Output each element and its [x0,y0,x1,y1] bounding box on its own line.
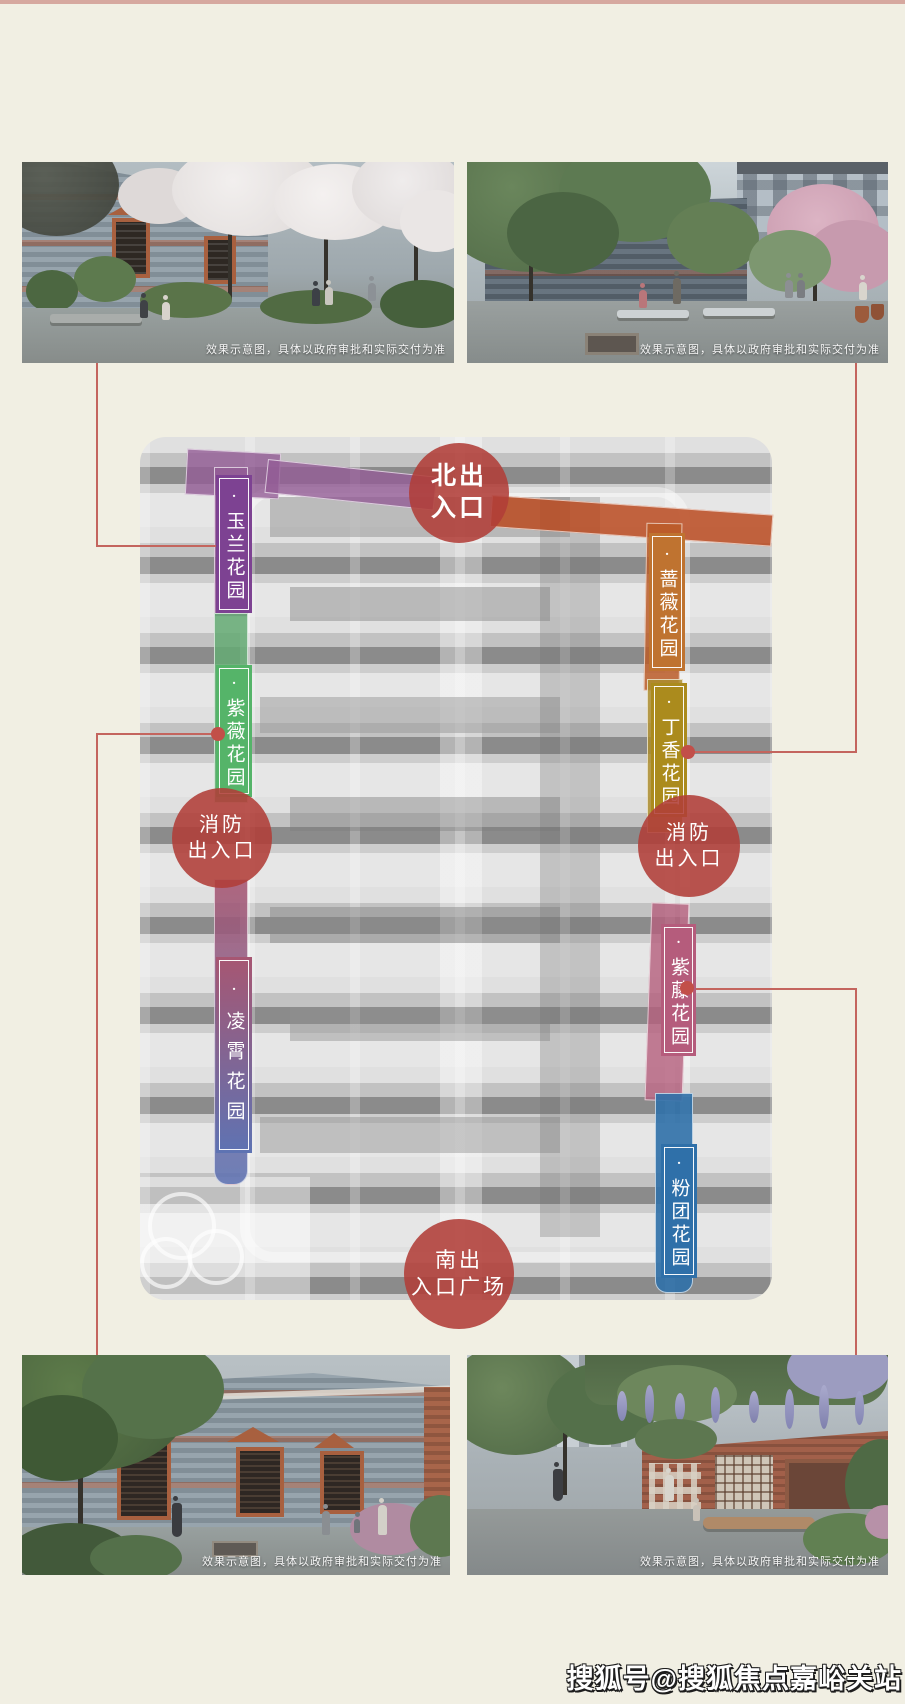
connector-dot [211,727,225,741]
photo-caption: 效果示意图，具体以政府审批和实际交付为准 [640,1553,880,1569]
person-figure [639,290,647,308]
connector-line [687,988,857,990]
road-column [540,497,600,1237]
tree-canopy-blob [667,202,759,274]
bench [703,308,775,316]
connector-line [96,733,98,1355]
shrub-blob [140,282,232,318]
person-figure [797,280,805,298]
person-figure [859,282,867,300]
person-figure [322,1511,330,1535]
building-block [290,1007,550,1041]
path-ring [140,1237,192,1289]
tree-canopy-blob [507,192,619,274]
connector-line [96,363,98,547]
top-border [0,0,905,4]
connector-line [855,363,857,753]
lattice-window [715,1455,773,1511]
connector-line [96,733,220,735]
shuttered-window [236,1447,284,1517]
path-ring [188,1229,244,1285]
connector-line [855,988,857,1355]
wisteria-cluster [711,1387,720,1423]
person-figure [785,280,793,298]
photo-caption: 效果示意图，具体以政府审批和实际交付为准 [202,1553,442,1569]
wisteria-cluster [675,1393,685,1421]
building-block [290,587,550,621]
page: 效果示意图，具体以政府审批和实际交付为准 效果示意图，具体以政府审批和实际交付为… [0,0,905,1704]
vine-blob [26,270,78,312]
person-figure [354,1519,360,1533]
entrance-north: 北出 入口 [409,443,509,543]
photo-bottom-right: 效果示意图，具体以政府审批和实际交付为准 [467,1355,888,1575]
entrance-fire-west: 消防 出入口 [172,788,272,888]
fire-pit [585,333,639,355]
window-pediment [314,1433,354,1448]
garden-label-qiangwei: ·蔷薇花园 [649,533,685,671]
window-pediment [227,1427,279,1442]
shrub-blob [380,280,454,328]
bench [50,314,142,323]
photo-bottom-left: 效果示意图，具体以政府审批和实际交付为准 [22,1355,450,1575]
person-figure [693,1505,700,1521]
photo-caption: 效果示意图，具体以政府审批和实际交付为准 [206,341,446,357]
vine-blob [635,1419,717,1459]
photo-top-right: 效果示意图，具体以政府审批和实际交付为准 [467,162,888,363]
shrub-blob [90,1535,182,1575]
planter-pot [871,304,884,320]
person-figure [673,278,681,304]
person-figure [140,300,148,318]
person-figure [368,283,376,301]
building-block [270,907,560,943]
person-figure [162,302,170,320]
roof-line [737,162,888,174]
wisteria-cluster [785,1389,794,1429]
building-block [290,797,560,831]
person-figure [378,1505,387,1535]
photo-caption: 效果示意图，具体以政府审批和实际交付为准 [640,341,880,357]
person-figure [553,1469,563,1501]
garden-label-yulan: ·玉兰花园 [216,475,252,613]
photo-frame-wall [649,1463,701,1509]
wisteria-cluster [819,1385,829,1429]
photo-top-left: 效果示意图，具体以政府审批和实际交付为准 [22,162,454,363]
person-figure [325,287,333,305]
wisteria-cluster [617,1391,627,1421]
entrance-south-plaza: 南出 入口广场 [404,1219,514,1329]
wisteria-cluster [645,1385,654,1423]
wisteria-cluster [749,1391,759,1423]
connector-line [687,751,857,753]
wisteria-cluster [855,1391,864,1425]
building-block [260,697,560,733]
connector-line [96,545,218,547]
planter-pot [855,306,869,323]
person-figure [665,1475,674,1501]
site-plan-map: ·玉兰花园 ·紫薇花园 ·凌霄花园 ·蔷薇花园 ·丁香花园 ·紫藤花园 ·粉团花… [140,437,772,1300]
garden-label-lingxiao: ·凌霄花园 [216,957,252,1153]
connector-dot [681,745,695,759]
watermark: 搜狐号@搜狐焦点嘉峪关站 [567,1657,902,1696]
entrance-fire-east: 消防 出入口 [638,795,740,897]
bench [703,1517,815,1529]
garden-label-fentuan: ·粉团花园 [661,1144,697,1278]
person-figure [172,1503,182,1537]
building-block [260,1117,560,1153]
person-figure [312,288,320,306]
bench [617,310,689,318]
connector-dot [680,981,694,995]
vine-blob [74,256,136,302]
